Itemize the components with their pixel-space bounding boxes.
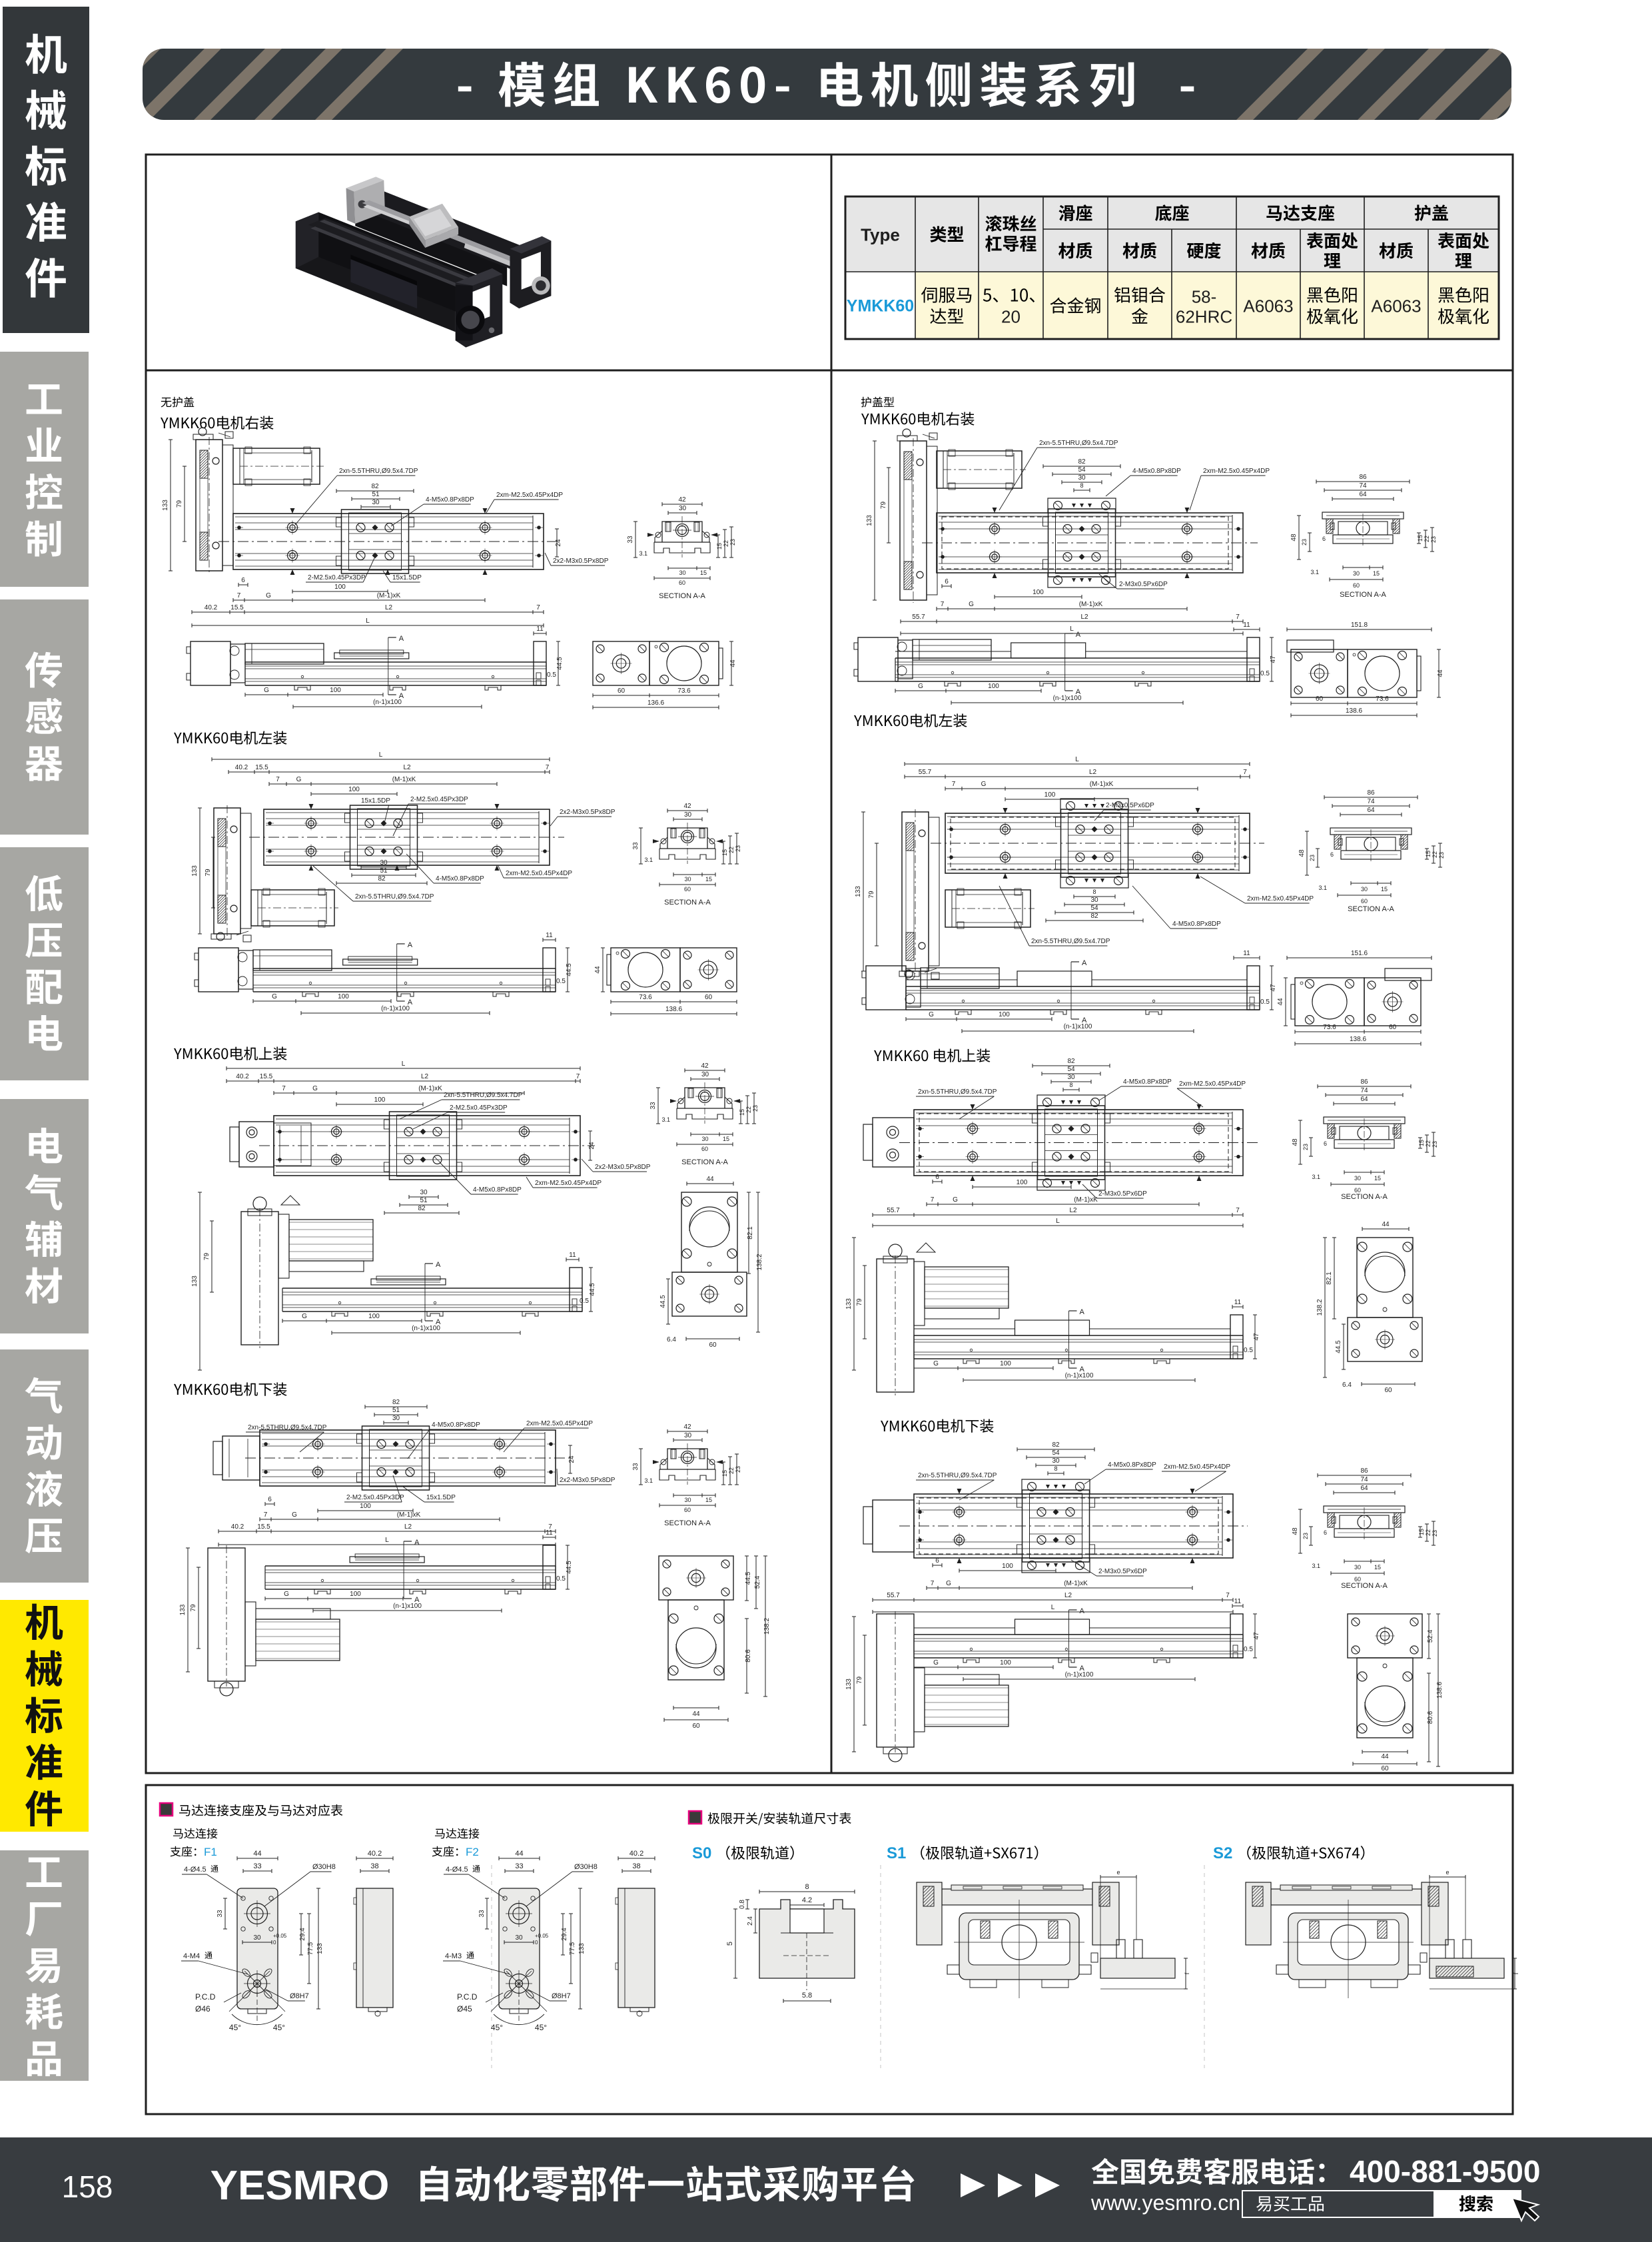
svg-text:L2: L2 <box>385 604 393 611</box>
svg-text:(M-1)xK: (M-1)xK <box>1090 781 1114 788</box>
svg-text:79: 79 <box>856 1298 863 1306</box>
svg-text:45°: 45° <box>229 2023 241 2032</box>
svg-text:79: 79 <box>190 1604 197 1612</box>
svg-text:SECTION A-A: SECTION A-A <box>681 1158 728 1166</box>
svg-text:44: 44 <box>1382 1221 1390 1228</box>
svg-text:79: 79 <box>205 869 212 877</box>
svg-text:www.yesmro.cn: www.yesmro.cn <box>1090 2191 1240 2215</box>
svg-text:0: 0 <box>273 1940 276 1946</box>
svg-text:15.5: 15.5 <box>257 1523 270 1531</box>
svg-text:15: 15 <box>721 1470 728 1477</box>
svg-text:2xn-5.5THRU,Ø9.5x4.7DP: 2xn-5.5THRU,Ø9.5x4.7DP <box>248 1424 327 1431</box>
svg-text:133: 133 <box>162 500 169 511</box>
svg-text:44.5: 44.5 <box>556 657 564 670</box>
svg-text:44: 44 <box>594 966 602 974</box>
svg-text:158: 158 <box>62 2169 113 2204</box>
svg-text:73.6: 73.6 <box>677 687 691 695</box>
svg-text:L: L <box>1070 625 1074 633</box>
svg-text:30: 30 <box>1354 1564 1361 1571</box>
svg-text:15x1.5DP: 15x1.5DP <box>426 1494 456 1501</box>
svg-text:11: 11 <box>546 932 553 939</box>
svg-text:138.2: 138.2 <box>1316 1299 1324 1315</box>
svg-text:0.5: 0.5 <box>1260 998 1270 1006</box>
svg-text:44: 44 <box>1277 998 1284 1006</box>
svg-text:15: 15 <box>723 1136 729 1142</box>
svg-text:11: 11 <box>1243 621 1250 629</box>
svg-text:30: 30 <box>1353 570 1360 577</box>
svg-text:33: 33 <box>515 1862 523 1870</box>
svg-text:133: 133 <box>179 1604 187 1615</box>
svg-text:Type: Type <box>861 225 900 245</box>
svg-text:79: 79 <box>176 500 183 508</box>
svg-text:22: 22 <box>728 1467 735 1474</box>
svg-text:79: 79 <box>880 502 887 510</box>
svg-text:30: 30 <box>701 1136 708 1142</box>
svg-text:2xn-5.5THRU,Ø9.5x4.7DP: 2xn-5.5THRU,Ø9.5x4.7DP <box>339 468 418 475</box>
svg-text:23: 23 <box>1432 1530 1438 1537</box>
svg-text:SECTION A-A: SECTION A-A <box>664 1519 711 1527</box>
svg-text:7: 7 <box>276 776 280 783</box>
svg-text:G: G <box>929 1011 934 1018</box>
svg-text:6.4: 6.4 <box>667 1336 676 1343</box>
svg-text:22: 22 <box>745 1106 752 1113</box>
svg-text:74: 74 <box>1360 1476 1368 1483</box>
svg-text:15.5: 15.5 <box>260 1073 273 1080</box>
svg-text:15x1.5DP: 15x1.5DP <box>361 797 390 805</box>
svg-text:60: 60 <box>701 1146 708 1152</box>
svg-text:6: 6 <box>1330 851 1334 858</box>
svg-text:60: 60 <box>1381 1765 1389 1772</box>
svg-text:86: 86 <box>1359 474 1367 481</box>
svg-text:82: 82 <box>378 875 386 883</box>
svg-text:60: 60 <box>1316 695 1324 703</box>
svg-text:F1: F1 <box>204 1846 217 1858</box>
svg-text:L2: L2 <box>421 1073 429 1080</box>
svg-text:G: G <box>292 1511 297 1519</box>
svg-text:4-M5x0.8Px8DP: 4-M5x0.8Px8DP <box>432 1421 480 1429</box>
svg-text:3.1: 3.1 <box>644 857 653 863</box>
svg-text:8: 8 <box>805 1883 809 1891</box>
svg-text:6: 6 <box>935 1174 939 1181</box>
svg-text:2-M2.5x0.45Px3DP: 2-M2.5x0.45Px3DP <box>450 1104 508 1112</box>
svg-text:29.4: 29.4 <box>561 1928 568 1941</box>
svg-text:L2: L2 <box>1069 1207 1077 1214</box>
svg-text:L2: L2 <box>403 764 411 771</box>
svg-text:0.5: 0.5 <box>580 1298 589 1305</box>
svg-text:44: 44 <box>253 1850 261 1858</box>
svg-text:G: G <box>918 683 923 690</box>
svg-text:77.5: 77.5 <box>307 1942 314 1955</box>
svg-text:22: 22 <box>723 540 729 547</box>
svg-text:79: 79 <box>856 1677 863 1684</box>
svg-text:Ø8H7: Ø8H7 <box>290 1992 309 2000</box>
svg-text:138.2: 138.2 <box>756 1254 763 1270</box>
svg-text:Ø46: Ø46 <box>195 2004 210 2014</box>
svg-text:Ø30H8: Ø30H8 <box>574 1863 598 1871</box>
svg-text:2xm-M2.5x0.45Px4DP: 2xm-M2.5x0.45Px4DP <box>1203 468 1270 475</box>
svg-text:73.6: 73.6 <box>1323 1024 1336 1031</box>
svg-text:2xm-M2.5x0.45Px4DP: 2xm-M2.5x0.45Px4DP <box>1247 895 1314 903</box>
svg-text:+0.05: +0.05 <box>273 1933 287 1939</box>
svg-text:100: 100 <box>330 687 341 694</box>
svg-text:22: 22 <box>1432 851 1438 858</box>
svg-text:60: 60 <box>684 1507 691 1513</box>
svg-text:2xn-5.5THRU,Ø9.5x4.7DP: 2xn-5.5THRU,Ø9.5x4.7DP <box>1031 938 1110 945</box>
svg-text:0.5: 0.5 <box>556 978 566 985</box>
svg-text:6: 6 <box>935 1557 939 1565</box>
svg-text:23: 23 <box>752 1105 759 1112</box>
svg-text:6: 6 <box>1324 1140 1327 1147</box>
svg-text:100: 100 <box>338 993 349 1000</box>
svg-text:60: 60 <box>705 994 713 1001</box>
svg-text:(M-1)xK: (M-1)xK <box>418 1085 442 1092</box>
svg-text:G: G <box>933 1360 939 1367</box>
svg-text:100: 100 <box>999 1011 1010 1018</box>
svg-text:15: 15 <box>1418 1529 1425 1535</box>
svg-text:11: 11 <box>546 1529 553 1537</box>
svg-text:100: 100 <box>1002 1563 1013 1570</box>
svg-text:138.2: 138.2 <box>763 1618 771 1635</box>
svg-text:136.6: 136.6 <box>647 699 664 707</box>
svg-text:40.2: 40.2 <box>368 1850 382 1858</box>
svg-text:77.5: 77.5 <box>569 1942 576 1955</box>
svg-text:6: 6 <box>1324 1529 1327 1536</box>
svg-text:58-: 58- <box>1192 287 1217 307</box>
svg-text:133: 133 <box>855 886 862 897</box>
svg-text:SECTION A-A: SECTION A-A <box>1348 905 1394 913</box>
svg-text:15: 15 <box>705 1497 712 1503</box>
svg-text:82: 82 <box>1078 458 1086 466</box>
svg-text:3.1: 3.1 <box>1312 1563 1320 1569</box>
svg-text:15x1.5DP: 15x1.5DP <box>392 574 422 581</box>
svg-text:0.5: 0.5 <box>1244 1646 1253 1653</box>
svg-text:4-M4: 4-M4 <box>183 1952 200 1960</box>
svg-text:SECTION A-A: SECTION A-A <box>659 592 705 600</box>
svg-text:100: 100 <box>1017 1179 1028 1186</box>
svg-text:SECTION A-A: SECTION A-A <box>1341 1582 1388 1590</box>
svg-text:55.7: 55.7 <box>887 1592 900 1599</box>
svg-text:30: 30 <box>515 1934 523 1942</box>
svg-text:(M-1)xK: (M-1)xK <box>1074 1196 1098 1204</box>
svg-text:7: 7 <box>264 1511 268 1519</box>
svg-text:100: 100 <box>988 683 999 690</box>
svg-text:138.6: 138.6 <box>1346 707 1362 715</box>
svg-text:11: 11 <box>536 625 544 633</box>
svg-text:30: 30 <box>684 1497 691 1503</box>
svg-text:15: 15 <box>1373 570 1380 577</box>
svg-text:A: A <box>1080 1308 1085 1316</box>
svg-text:15: 15 <box>1417 535 1424 542</box>
svg-text:151.6: 151.6 <box>1351 950 1368 957</box>
svg-text:S0: S0 <box>692 1844 711 1862</box>
svg-text:L: L <box>1056 1218 1060 1225</box>
svg-text:100: 100 <box>350 1591 361 1598</box>
svg-text:L2: L2 <box>1064 1592 1072 1599</box>
svg-text:15: 15 <box>716 543 723 550</box>
svg-text:48: 48 <box>1292 1527 1299 1535</box>
svg-text:2xn-5.5THRU,Ø9.5x4.7DP: 2xn-5.5THRU,Ø9.5x4.7DP <box>444 1092 523 1099</box>
svg-text:2-M2.5x0.45Px3DP: 2-M2.5x0.45Px3DP <box>346 1494 404 1501</box>
svg-text:48: 48 <box>1290 534 1298 542</box>
svg-text:15.5: 15.5 <box>230 604 244 611</box>
svg-text:30: 30 <box>372 499 380 506</box>
svg-text:24: 24 <box>588 1142 596 1150</box>
svg-text:G: G <box>933 1659 939 1667</box>
svg-text:0.5: 0.5 <box>1260 670 1270 677</box>
svg-text:0.5: 0.5 <box>556 1575 566 1583</box>
svg-text:74: 74 <box>1367 798 1375 805</box>
svg-text:6: 6 <box>1322 536 1326 542</box>
svg-text:0: 0 <box>535 1940 538 1946</box>
svg-text:51: 51 <box>380 867 388 875</box>
svg-text:55.7: 55.7 <box>919 769 932 776</box>
svg-text:7: 7 <box>952 781 956 788</box>
svg-text:29.4: 29.4 <box>299 1928 306 1941</box>
svg-text:60: 60 <box>1353 582 1360 589</box>
svg-text:F2: F2 <box>466 1846 479 1858</box>
svg-text:42: 42 <box>683 803 691 810</box>
svg-text:23: 23 <box>729 539 736 546</box>
svg-text:4-M5x0.8Px8DP: 4-M5x0.8Px8DP <box>426 496 474 504</box>
svg-text:44.5: 44.5 <box>566 1561 573 1574</box>
svg-text:47: 47 <box>1253 1632 1260 1640</box>
svg-text:11: 11 <box>1234 1299 1242 1306</box>
svg-text:2x2-M3x0.5Px8DP: 2x2-M3x0.5Px8DP <box>560 1477 616 1484</box>
svg-text:30: 30 <box>679 569 685 576</box>
svg-text:44.5: 44.5 <box>589 1283 596 1296</box>
svg-text:A6063: A6063 <box>1371 296 1421 316</box>
svg-text:(n-1)x100: (n-1)x100 <box>1065 1372 1094 1379</box>
svg-text:80.6: 80.6 <box>1427 1710 1434 1724</box>
svg-text:30: 30 <box>684 1432 692 1439</box>
svg-text:82: 82 <box>1067 1058 1075 1065</box>
svg-text:G: G <box>272 993 277 1000</box>
svg-text:55.7: 55.7 <box>887 1207 900 1214</box>
svg-text:23: 23 <box>1309 855 1316 861</box>
svg-text:(M-1)xK: (M-1)xK <box>1064 1580 1088 1587</box>
svg-text:44.5: 44.5 <box>745 1571 752 1585</box>
svg-text:(n-1)x100: (n-1)x100 <box>393 1603 422 1610</box>
svg-text:22: 22 <box>1425 1529 1432 1536</box>
svg-text:74: 74 <box>1360 1087 1368 1094</box>
svg-text:22: 22 <box>728 847 735 853</box>
svg-text:151.8: 151.8 <box>1351 621 1368 629</box>
svg-text:82: 82 <box>392 1399 400 1406</box>
svg-text:45°: 45° <box>491 2023 503 2032</box>
svg-text:4-Ø4.5: 4-Ø4.5 <box>184 1866 206 1874</box>
svg-text:4-M5x0.8Px8DP: 4-M5x0.8Px8DP <box>473 1186 522 1194</box>
svg-text:0.8: 0.8 <box>739 1900 746 1909</box>
svg-text:11: 11 <box>1243 950 1250 957</box>
svg-text:138.6: 138.6 <box>1436 1682 1444 1698</box>
svg-text:23: 23 <box>1438 852 1445 859</box>
svg-text:133: 133 <box>845 1679 853 1690</box>
svg-text:100: 100 <box>368 1313 380 1320</box>
svg-text:86: 86 <box>1360 1078 1368 1086</box>
svg-text:54: 54 <box>1090 905 1098 912</box>
svg-text:8: 8 <box>1080 482 1083 489</box>
svg-text:S1: S1 <box>887 1844 906 1862</box>
svg-text:5: 5 <box>726 1942 734 1946</box>
svg-text:0.5: 0.5 <box>547 671 556 679</box>
svg-text:30: 30 <box>420 1189 428 1196</box>
svg-text:24: 24 <box>568 1455 576 1463</box>
svg-text:54: 54 <box>1052 1449 1060 1457</box>
svg-text:(n-1)x100: (n-1)x100 <box>373 699 402 706</box>
svg-text:L2: L2 <box>1080 613 1088 621</box>
svg-text:100: 100 <box>1044 791 1056 799</box>
svg-text:42: 42 <box>683 1423 691 1431</box>
svg-text:6.4: 6.4 <box>1342 1381 1352 1389</box>
svg-text:G: G <box>296 776 302 783</box>
svg-text:2-M3x0.5Px6DP: 2-M3x0.5Px6DP <box>1098 1568 1147 1575</box>
svg-text:40.2: 40.2 <box>205 604 218 611</box>
svg-text:2xm-M2.5x0.45Px4DP: 2xm-M2.5x0.45Px4DP <box>506 870 572 877</box>
svg-text:(M-1)xK: (M-1)xK <box>377 592 401 599</box>
svg-text:23: 23 <box>735 1466 741 1473</box>
svg-text:2-M3x0.5Px6DP: 2-M3x0.5Px6DP <box>1098 1190 1147 1198</box>
svg-text:54: 54 <box>1078 466 1086 474</box>
svg-text:4-M5x0.8Px8DP: 4-M5x0.8Px8DP <box>1172 921 1221 928</box>
svg-text:7: 7 <box>1236 1207 1240 1214</box>
svg-text:30: 30 <box>701 1071 709 1078</box>
svg-text:(n-1)x100: (n-1)x100 <box>381 1005 410 1012</box>
svg-text:86: 86 <box>1367 789 1375 797</box>
svg-text:4-M5x0.8Px8DP: 4-M5x0.8Px8DP <box>1132 468 1181 475</box>
svg-text:44: 44 <box>729 659 737 667</box>
svg-text:(n-1)x100: (n-1)x100 <box>1064 1023 1092 1030</box>
svg-text:11: 11 <box>569 1252 576 1259</box>
svg-text:A: A <box>408 941 413 949</box>
svg-text:82: 82 <box>1052 1441 1060 1449</box>
svg-text:7: 7 <box>941 601 945 608</box>
svg-text:15: 15 <box>739 1109 745 1116</box>
svg-text:6: 6 <box>268 1496 272 1503</box>
svg-text:33: 33 <box>649 1102 657 1110</box>
svg-text:86: 86 <box>1360 1467 1368 1475</box>
svg-text:2xn-5.5THRU,Ø9.5x4.7DP: 2xn-5.5THRU,Ø9.5x4.7DP <box>1039 440 1118 447</box>
svg-text:2xn-5.5THRU,Ø9.5x4.7DP: 2xn-5.5THRU,Ø9.5x4.7DP <box>355 893 434 901</box>
svg-text:2xm-M2.5x0.45Px4DP: 2xm-M2.5x0.45Px4DP <box>526 1420 593 1427</box>
svg-text:51: 51 <box>392 1407 400 1414</box>
svg-text:G: G <box>953 1196 958 1204</box>
svg-text:33: 33 <box>478 1910 486 1918</box>
svg-text:2xn-5.5THRU,Ø9.5x4.7DP: 2xn-5.5THRU,Ø9.5x4.7DP <box>918 1472 997 1479</box>
svg-text:30: 30 <box>684 811 692 819</box>
svg-text:22: 22 <box>1424 536 1430 542</box>
svg-text:60: 60 <box>1384 1387 1392 1394</box>
svg-text:2xn-5.5THRU,Ø9.5x4.7DP: 2xn-5.5THRU,Ø9.5x4.7DP <box>918 1088 997 1096</box>
svg-text:15.5: 15.5 <box>255 764 268 771</box>
svg-text:54: 54 <box>1067 1066 1075 1073</box>
svg-text:64: 64 <box>1360 1096 1368 1103</box>
svg-text:7: 7 <box>1226 1592 1230 1599</box>
svg-text:23: 23 <box>1430 536 1437 543</box>
svg-text:YMKK60: YMKK60 <box>847 297 914 316</box>
svg-text:62HRC: 62HRC <box>1176 307 1232 327</box>
svg-text:4-Ø4.5: 4-Ø4.5 <box>446 1866 468 1874</box>
svg-text:133: 133 <box>191 865 199 877</box>
svg-text:45°: 45° <box>273 2023 285 2032</box>
svg-text:40.2: 40.2 <box>629 1850 643 1858</box>
svg-text:2x2-M3x0.5Px8DP: 2x2-M3x0.5Px8DP <box>560 809 616 816</box>
svg-text:100: 100 <box>374 1096 386 1104</box>
svg-text:7: 7 <box>931 1196 935 1204</box>
svg-text:42: 42 <box>678 496 686 504</box>
svg-text:8: 8 <box>1069 1082 1072 1088</box>
svg-text:23: 23 <box>1302 1533 1309 1539</box>
svg-text:138.6: 138.6 <box>1350 1036 1366 1043</box>
svg-text:7: 7 <box>1243 769 1247 776</box>
svg-text:64: 64 <box>1359 491 1367 498</box>
svg-text:52.4: 52.4 <box>754 1575 761 1589</box>
svg-text:60: 60 <box>1389 1024 1397 1031</box>
svg-text:23: 23 <box>735 845 741 852</box>
svg-text:30: 30 <box>1067 1074 1075 1081</box>
svg-text:133: 133 <box>191 1276 199 1287</box>
svg-text:100: 100 <box>348 786 360 793</box>
svg-text:G: G <box>312 1085 318 1092</box>
svg-text:48: 48 <box>1292 1138 1299 1146</box>
svg-text:40.2: 40.2 <box>235 764 248 771</box>
svg-text:S2: S2 <box>1213 1844 1232 1862</box>
svg-text:(n-1)x100: (n-1)x100 <box>1065 1671 1094 1679</box>
svg-text:60: 60 <box>1361 898 1368 905</box>
svg-text:G: G <box>264 687 269 694</box>
svg-text:138.6: 138.6 <box>665 1006 682 1013</box>
svg-text:15: 15 <box>721 849 728 856</box>
svg-text:3.1: 3.1 <box>644 1477 653 1484</box>
svg-text:2-M3x0.5Px6DP: 2-M3x0.5Px6DP <box>1106 802 1154 809</box>
svg-text:133: 133 <box>316 1943 324 1954</box>
svg-text:(M-1)xK: (M-1)xK <box>392 776 416 783</box>
svg-text:44: 44 <box>1437 669 1444 677</box>
svg-text:Ø30H8: Ø30H8 <box>312 1863 336 1871</box>
svg-text:11: 11 <box>1234 1598 1242 1605</box>
svg-text:30: 30 <box>1052 1457 1060 1465</box>
svg-text:23: 23 <box>1301 539 1308 546</box>
svg-text:100: 100 <box>1000 1360 1011 1367</box>
svg-text:2xm-M2.5x0.45Px4DP: 2xm-M2.5x0.45Px4DP <box>1164 1463 1230 1471</box>
svg-text:73.6: 73.6 <box>639 994 652 1001</box>
svg-text:5.8: 5.8 <box>802 1992 812 2000</box>
svg-text:33: 33 <box>632 1463 639 1471</box>
svg-text:23: 23 <box>1302 1144 1309 1150</box>
svg-text:7: 7 <box>931 1580 935 1587</box>
svg-text:4-M5x0.8Px8DP: 4-M5x0.8Px8DP <box>1123 1078 1172 1086</box>
svg-text:G: G <box>302 1313 307 1320</box>
svg-text:L: L <box>366 617 370 625</box>
svg-text:30: 30 <box>679 505 687 512</box>
svg-text:82: 82 <box>371 483 379 490</box>
svg-text:8: 8 <box>1092 889 1096 895</box>
svg-text:6: 6 <box>241 577 245 584</box>
svg-text:3.1: 3.1 <box>661 1116 670 1123</box>
svg-text:4-M5x0.8Px8DP: 4-M5x0.8Px8DP <box>1108 1461 1156 1469</box>
svg-text:SECTION A-A: SECTION A-A <box>1341 1193 1388 1201</box>
svg-text:15: 15 <box>1418 1140 1425 1146</box>
svg-text:79: 79 <box>203 1253 210 1261</box>
svg-text:A6063: A6063 <box>1243 296 1293 316</box>
svg-text:15: 15 <box>705 876 712 883</box>
svg-text:60: 60 <box>709 1341 717 1349</box>
svg-text:100: 100 <box>1032 589 1044 596</box>
svg-text:45°: 45° <box>535 2023 547 2032</box>
svg-text:2-M3x0.5Px6DP: 2-M3x0.5Px6DP <box>1119 581 1168 588</box>
svg-text:7: 7 <box>576 1073 580 1080</box>
svg-text:A: A <box>1082 959 1087 967</box>
svg-text:3.1: 3.1 <box>1318 885 1327 891</box>
